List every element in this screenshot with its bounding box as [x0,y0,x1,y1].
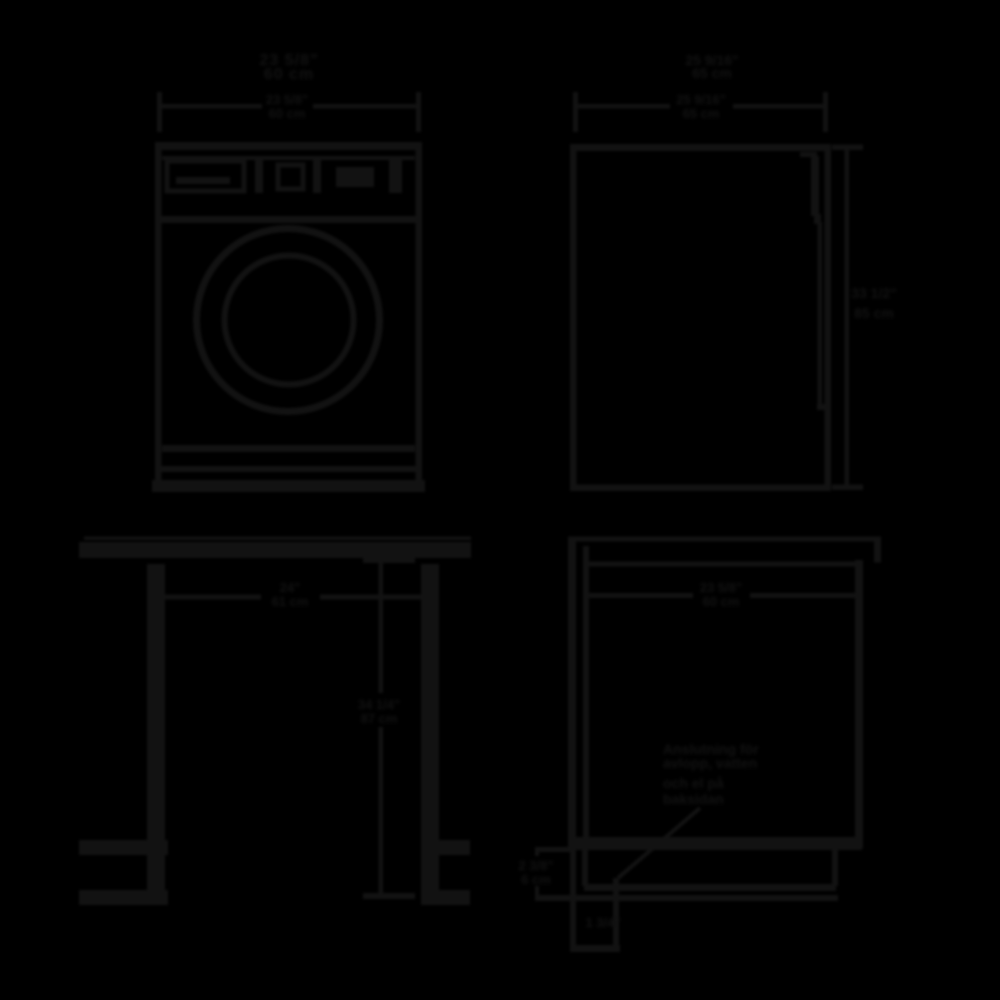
svg-text:6 cm: 6 cm [521,872,551,887]
svg-text:65 cm: 65 cm [683,106,720,121]
svg-text:baksidan: baksidan [663,791,724,807]
svg-text:87 cm: 87 cm [361,711,398,726]
svg-text:65 cm: 65 cm [692,65,732,81]
svg-text:avlopp, vatten: avlopp, vatten [663,755,757,771]
svg-text:23 5/8": 23 5/8" [266,92,308,107]
svg-text:60 cm: 60 cm [264,66,314,83]
svg-text:24": 24" [280,580,301,595]
svg-text:och el på: och el på [663,775,724,791]
svg-text:33 1/2": 33 1/2" [851,285,897,301]
svg-text:1 3/4": 1 3/4" [585,915,620,930]
svg-text:85 cm: 85 cm [854,305,894,321]
svg-text:2 3/8": 2 3/8" [518,858,553,873]
svg-text:60 cm: 60 cm [703,594,740,609]
svg-text:34 1/4": 34 1/4" [358,697,400,712]
svg-text:23 5/8": 23 5/8" [700,580,742,595]
svg-text:61 cm: 61 cm [272,594,309,609]
svg-text:60 cm: 60 cm [269,106,306,121]
svg-text:25 9/16": 25 9/16" [676,92,726,107]
